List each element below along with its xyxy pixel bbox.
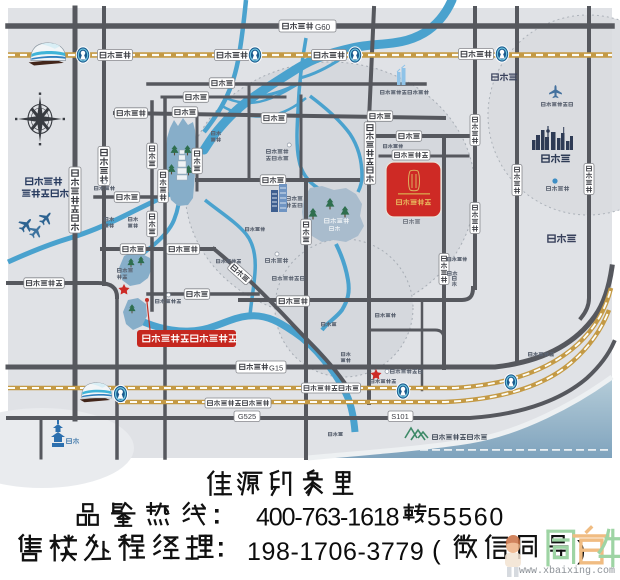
svg-text:G525: G525 bbox=[238, 412, 256, 421]
svg-text:(: ( bbox=[432, 535, 441, 565]
svg-text:198-1706-3779: 198-1706-3779 bbox=[247, 538, 424, 566]
svg-text:55560: 55560 bbox=[427, 504, 505, 532]
svg-text:G15: G15 bbox=[269, 364, 283, 373]
svg-text:G60: G60 bbox=[315, 23, 331, 32]
svg-text:S101: S101 bbox=[391, 412, 409, 421]
svg-text:400-763-1618: 400-763-1618 bbox=[256, 504, 399, 532]
svg-text:www.xbaixing.com: www.xbaixing.com bbox=[519, 565, 615, 577]
